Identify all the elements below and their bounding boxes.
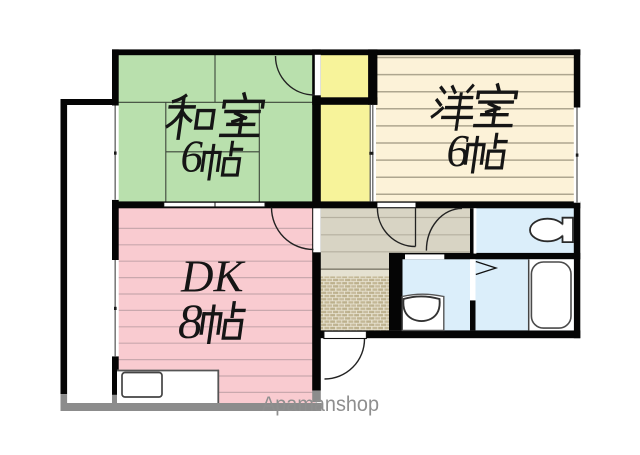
svg-text:Apamanshop: Apamanshop [262,392,379,416]
svg-text:8: 8 [178,294,203,349]
svg-text:6: 6 [181,132,204,182]
